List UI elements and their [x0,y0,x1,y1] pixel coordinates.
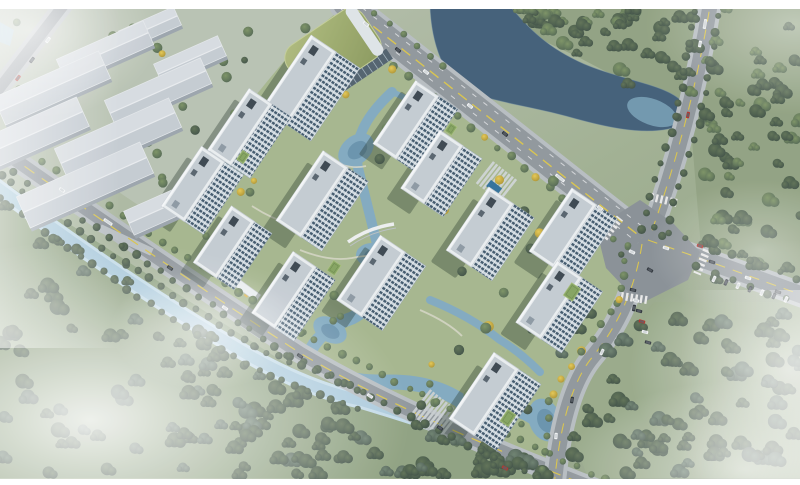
atmosphere-mist-layer [0,0,800,485]
white-margin-bottom [0,479,800,485]
white-margin-top [0,0,800,9]
aerial-rendering-frame [0,0,800,485]
mist-haze [0,0,800,485]
aerial-rendering-canvas [0,0,800,485]
